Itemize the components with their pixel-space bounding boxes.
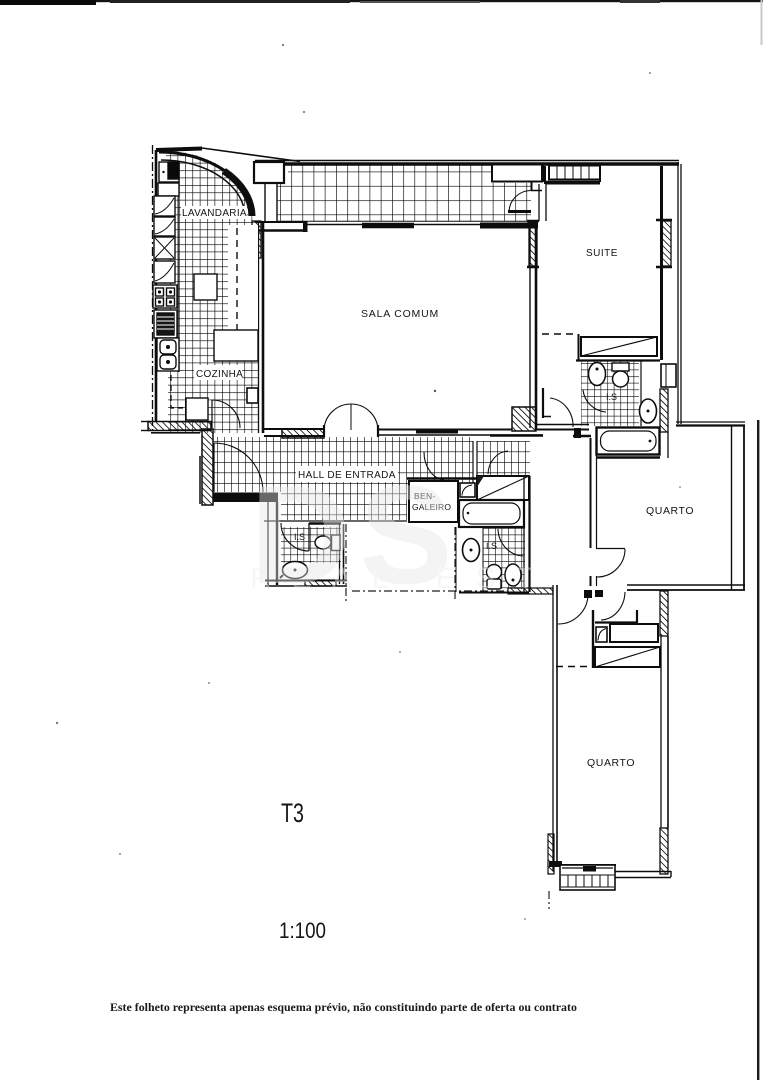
svg-text:QUARTO: QUARTO — [646, 505, 694, 517]
svg-text:I.S: I.S — [486, 541, 497, 551]
svg-text:I.S: I.S — [606, 392, 617, 402]
svg-text:LAVANDARIA: LAVANDARIA — [182, 208, 247, 219]
svg-text:COZINHA: COZINHA — [196, 369, 243, 380]
svg-text:QUARTO: QUARTO — [587, 757, 635, 769]
svg-text:SALA COMUM: SALA COMUM — [361, 308, 439, 320]
svg-text:1:100: 1:100 — [279, 918, 326, 943]
svg-text:T3: T3 — [281, 798, 304, 828]
svg-text:Este folheto representa apenas: Este folheto representa apenas esquema p… — [110, 1000, 577, 1014]
svg-text:REAL EST: REAL EST — [250, 562, 554, 595]
svg-text:SUITE: SUITE — [586, 248, 618, 259]
